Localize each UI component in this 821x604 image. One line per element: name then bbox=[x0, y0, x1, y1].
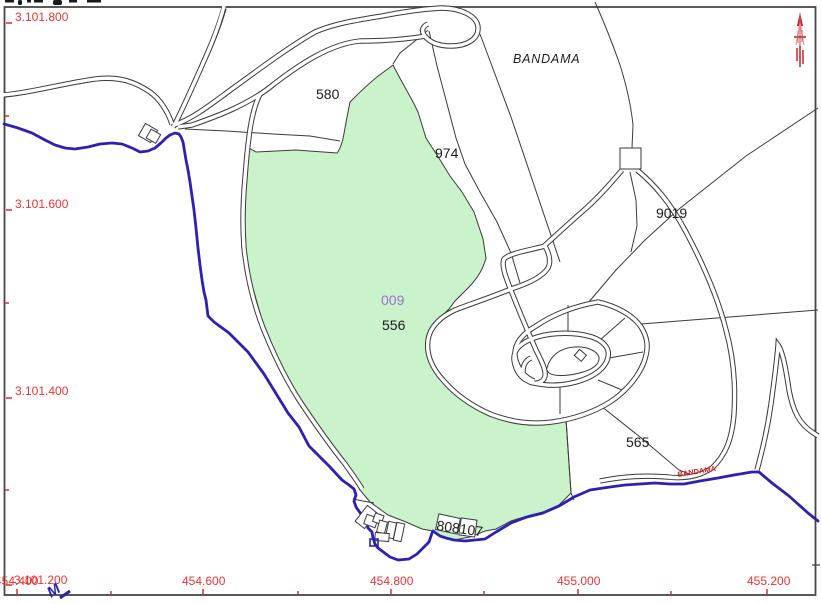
svg-text:9019: 9019 bbox=[656, 205, 687, 221]
svg-text:BANDAMA: BANDAMA bbox=[513, 52, 580, 66]
svg-text:3.101.800: 3.101.800 bbox=[15, 10, 69, 24]
svg-text:556: 556 bbox=[382, 317, 406, 333]
svg-text:3.101.600: 3.101.600 bbox=[15, 197, 69, 211]
svg-text:454.600: 454.600 bbox=[182, 574, 226, 588]
svg-text:009: 009 bbox=[381, 292, 405, 308]
svg-text:565: 565 bbox=[626, 434, 650, 450]
svg-text:455.200: 455.200 bbox=[747, 574, 791, 588]
svg-text:454.800: 454.800 bbox=[370, 574, 414, 588]
svg-text:580: 580 bbox=[316, 86, 340, 102]
svg-text:974: 974 bbox=[435, 145, 459, 161]
svg-text:455.000: 455.000 bbox=[557, 574, 601, 588]
svg-text:454.400: 454.400 bbox=[0, 574, 39, 588]
svg-text:3.101.400: 3.101.400 bbox=[15, 384, 69, 398]
